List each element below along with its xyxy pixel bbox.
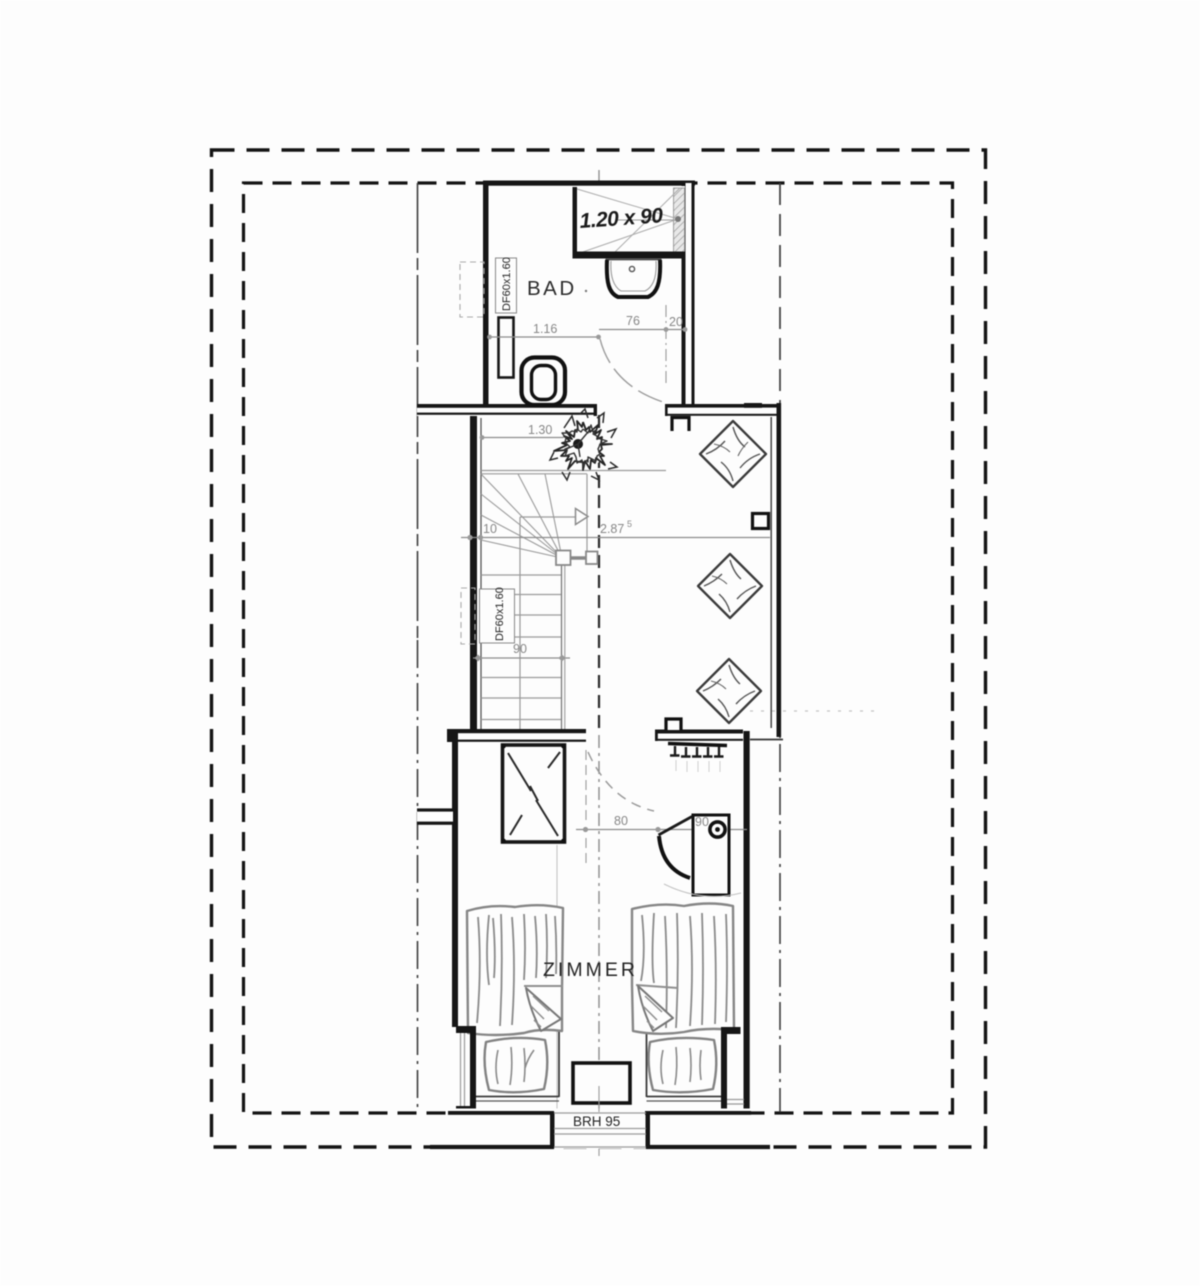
svg-text:1.30: 1.30 (528, 423, 552, 437)
svg-text:76: 76 (626, 314, 640, 328)
svg-text:BRH 95: BRH 95 (573, 1114, 620, 1129)
svg-text:80: 80 (614, 814, 628, 828)
svg-text:DF60x1.60: DF60x1.60 (494, 587, 506, 641)
svg-text:5: 5 (627, 519, 632, 529)
svg-text:20: 20 (669, 315, 683, 329)
svg-text:ZIMMER: ZIMMER (543, 959, 638, 981)
svg-text:1.16: 1.16 (533, 322, 557, 336)
svg-text:10: 10 (483, 522, 497, 536)
svg-text:DF60x1.60: DF60x1.60 (501, 257, 513, 311)
svg-text:90: 90 (513, 642, 527, 656)
svg-text:2.87: 2.87 (600, 522, 624, 536)
svg-text:BAD: BAD (527, 277, 577, 300)
svg-text:90: 90 (695, 815, 709, 829)
